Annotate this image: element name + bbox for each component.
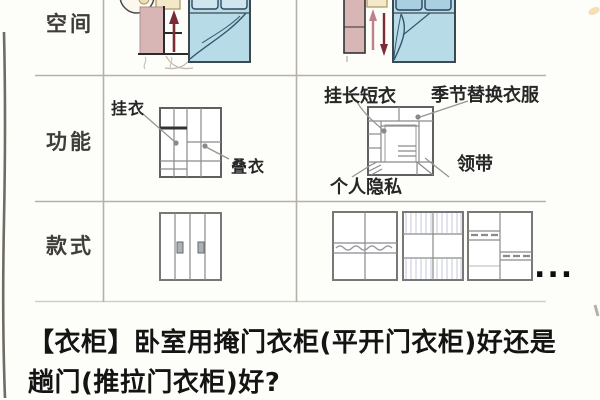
wardrobe-interior-sliding [352,100,468,177]
annotation-hang-long-short: 挂长短衣 [324,82,396,108]
wardrobe-comparison-infographic: 空间 功能 款式 挂衣 叠衣 挂长短衣 季节替换衣服 领带 个人隐私 ... 【… [0,0,600,400]
annotation-tie: 领带 [457,150,493,176]
floorplan-hinged-wardrobe [120,0,194,69]
question-title-line1: 【衣柜】卧室用掩门衣柜(平开门衣柜)好还是 [28,322,556,359]
slide-up-arrow-icon [369,9,377,50]
row-header-space: 空间 [46,8,94,38]
question-title-line2: 趟门(推拉门衣柜)好? [28,362,280,399]
row-header-style: 款式 [46,230,94,260]
row-header-function: 功能 [46,126,94,156]
door-style-sliding-2 [403,212,463,280]
annotation-fold-clothes: 叠衣 [231,153,265,177]
bed-top-view-icon [189,0,250,62]
bed-top-view-icon [393,0,455,62]
annotation-hang-clothes: 挂衣 [111,95,145,119]
floorplan-sliding-wardrobe [344,0,388,62]
swing-arrow-icon [169,10,179,52]
door-style-sliding-1 [333,212,397,280]
door-style-sliding-3 [468,212,532,280]
photo-edge-line [3,32,5,398]
door-style-hinged [160,213,221,280]
annotation-privacy: 个人隐私 [330,173,402,199]
more-styles-ellipsis: ... [534,250,574,285]
wardrobe-interior-hinged [143,108,229,177]
photo-smudge-top-right [587,5,600,16]
annotation-seasonal-clothes: 季节替换衣服 [431,81,539,107]
slide-down-arrow-icon [380,13,388,56]
photo-smudge-bottom-right [595,305,598,316]
